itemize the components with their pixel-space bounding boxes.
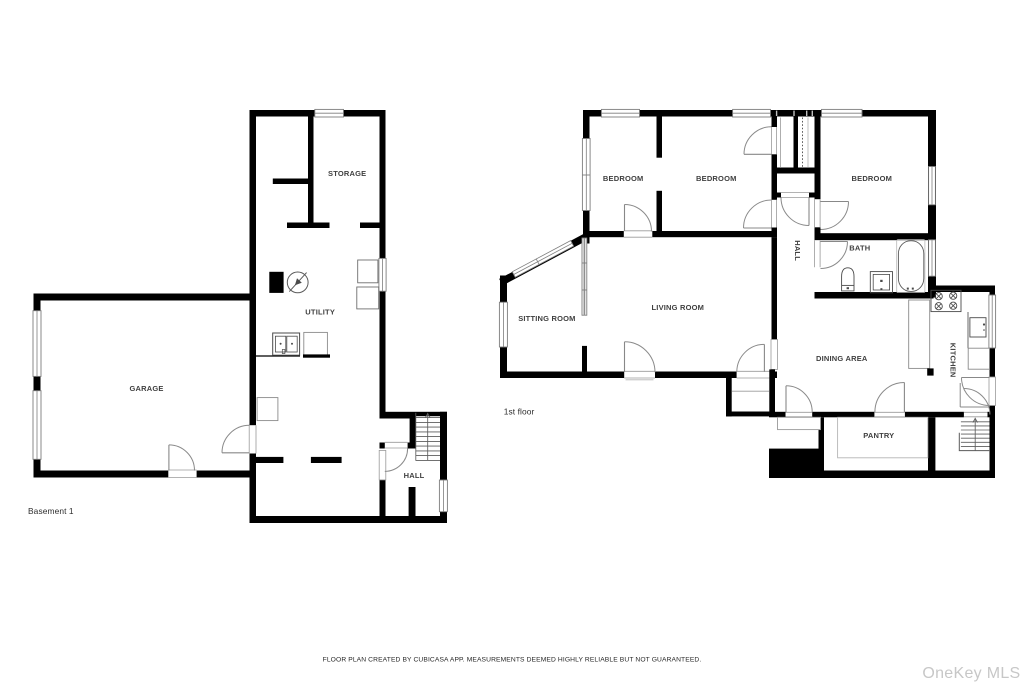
svg-text:HALL: HALL (793, 240, 802, 261)
svg-text:PANTRY: PANTRY (863, 431, 894, 440)
svg-text:LIVING ROOM: LIVING ROOM (652, 303, 705, 312)
svg-text:STORAGE: STORAGE (328, 169, 366, 178)
svg-text:OneKey MLS: OneKey MLS (922, 665, 1020, 682)
svg-text:BEDROOM: BEDROOM (603, 174, 644, 183)
svg-text:GARAGE: GARAGE (130, 384, 164, 393)
svg-text:HALL: HALL (404, 471, 425, 480)
svg-text:Basement 1: Basement 1 (28, 506, 74, 516)
svg-text:BEDROOM: BEDROOM (852, 174, 893, 183)
svg-text:KITCHEN: KITCHEN (949, 343, 958, 378)
svg-text:1st floor: 1st floor (504, 407, 535, 417)
svg-text:FLOOR PLAN CREATED BY CUBICASA: FLOOR PLAN CREATED BY CUBICASA APP. MEAS… (323, 657, 702, 664)
svg-text:BATH: BATH (849, 244, 870, 253)
svg-text:SITTING ROOM: SITTING ROOM (518, 314, 575, 323)
svg-text:BEDROOM: BEDROOM (696, 174, 737, 183)
svg-text:UTILITY: UTILITY (305, 308, 335, 317)
svg-text:DINING AREA: DINING AREA (816, 354, 868, 363)
